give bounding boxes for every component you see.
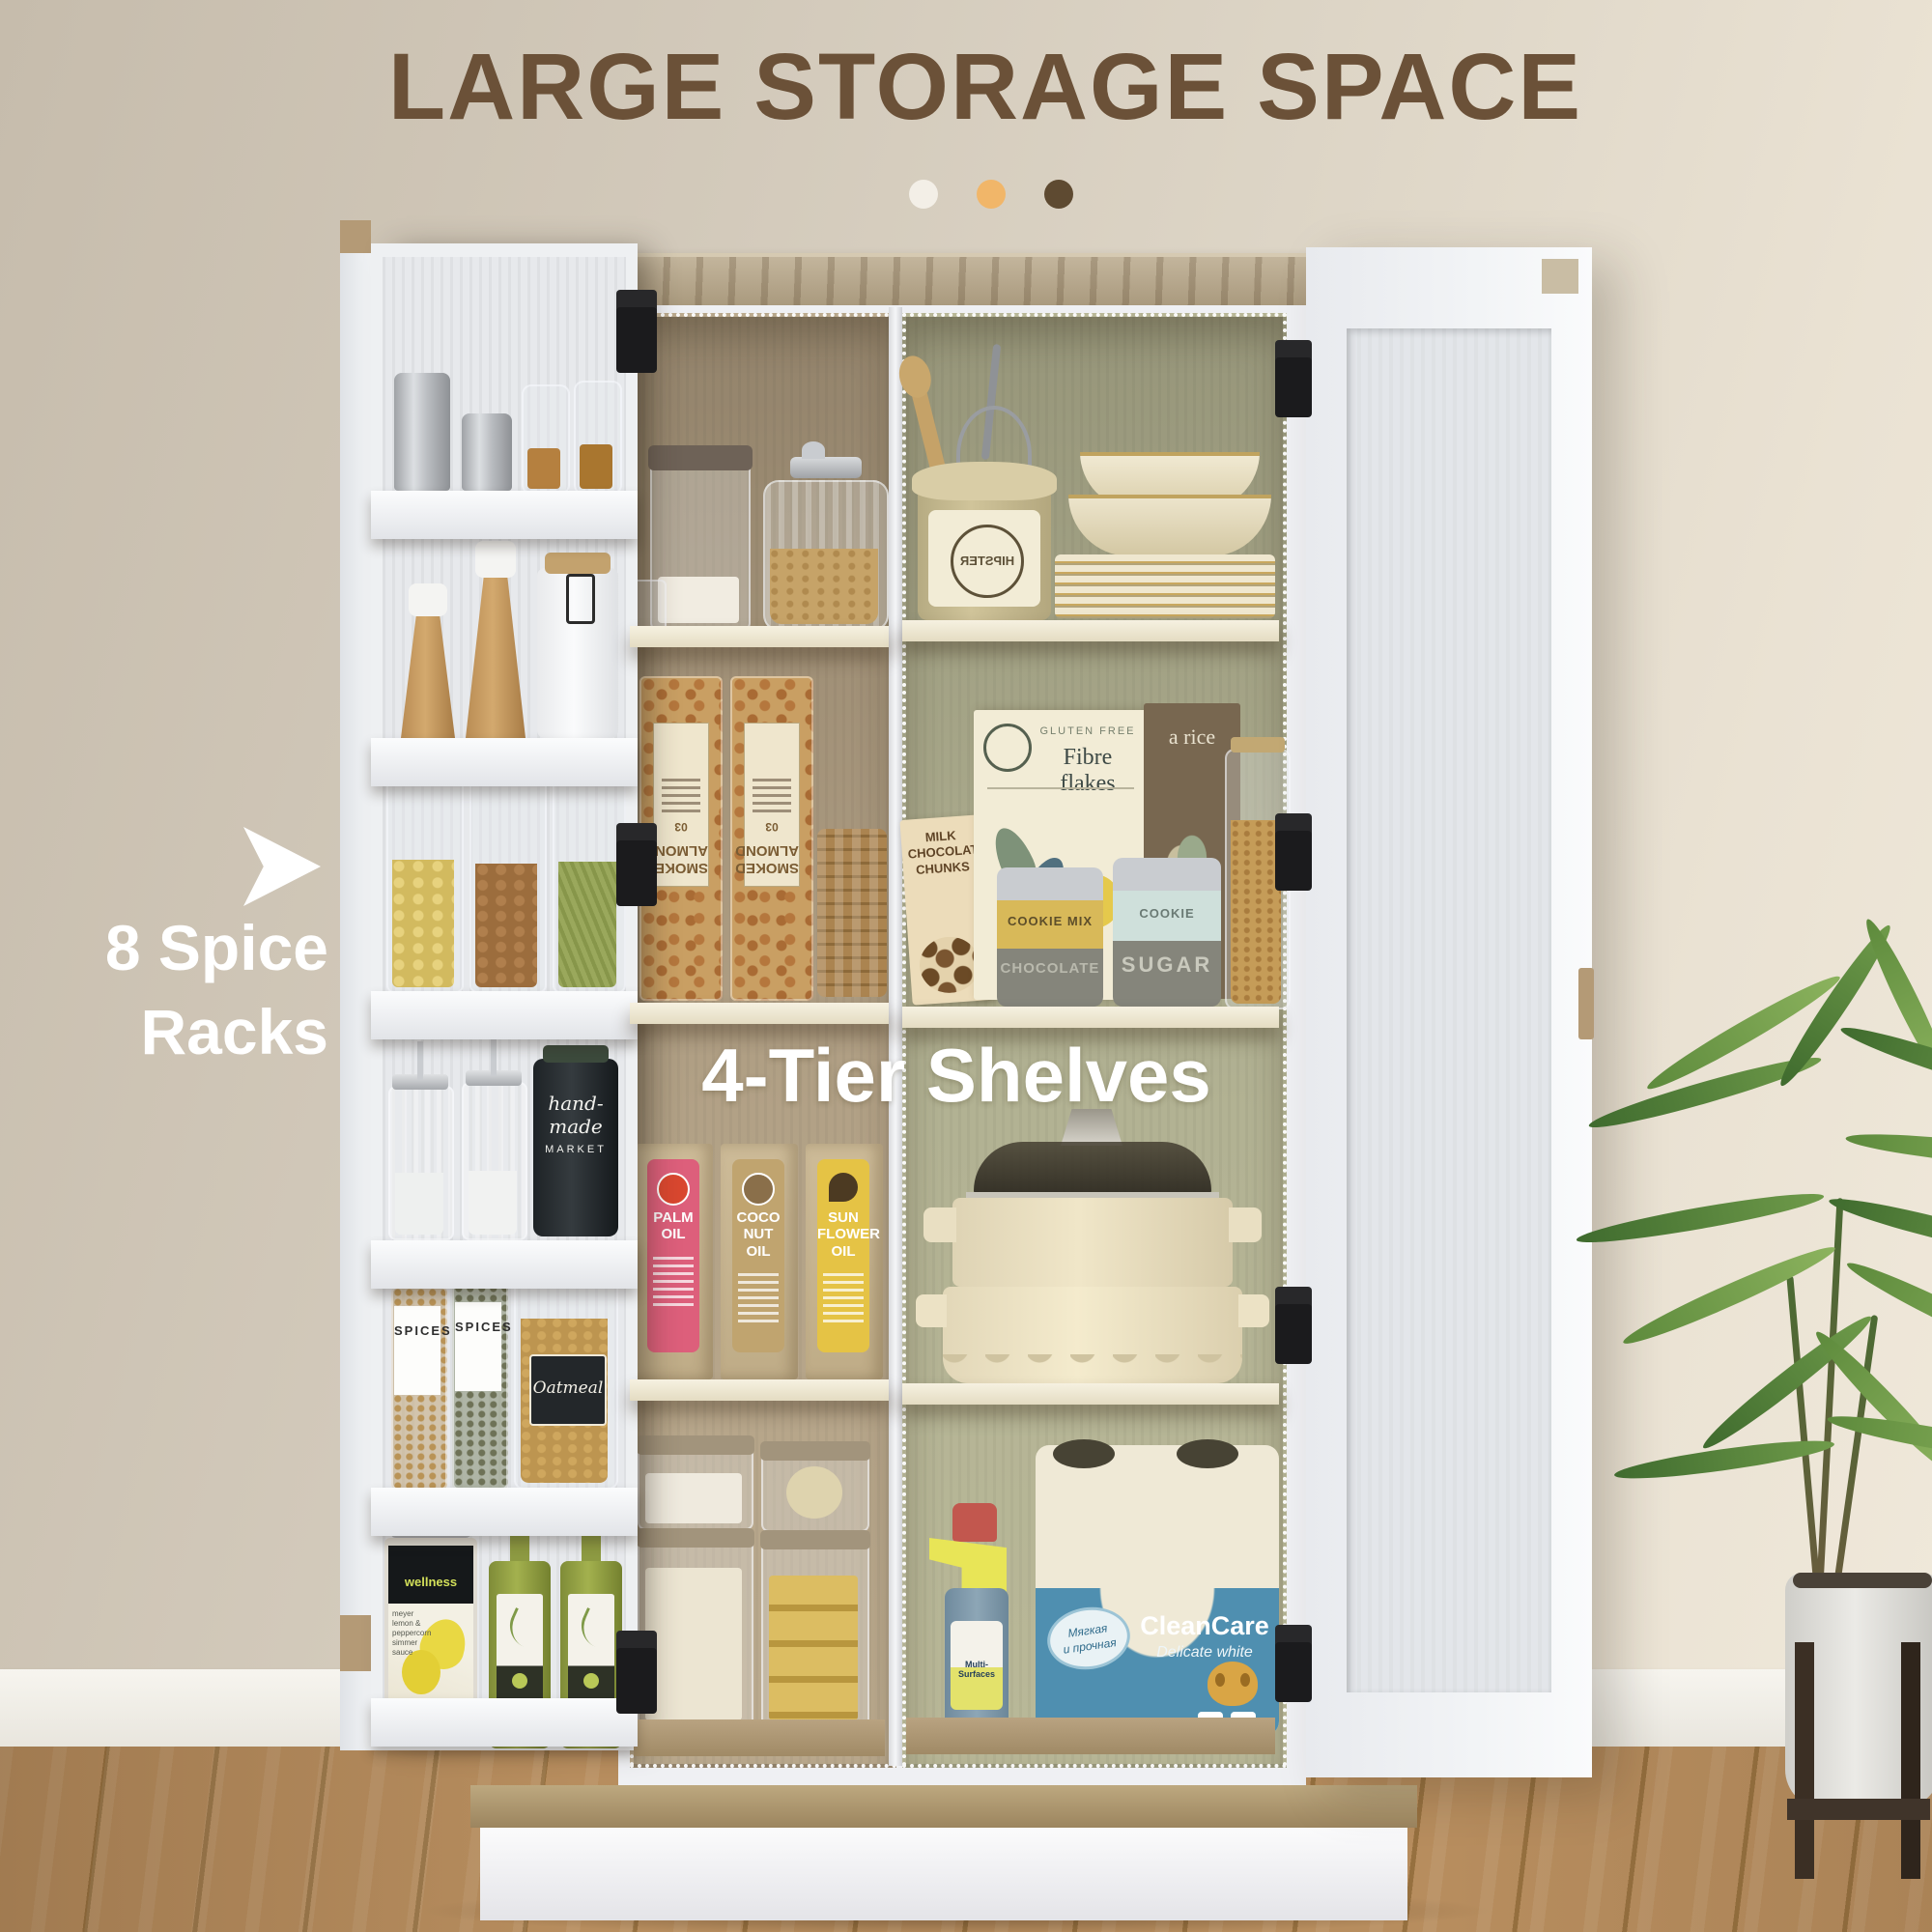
spice-racks-callout: 8 Spice Racks <box>39 906 328 1074</box>
chalkboard-jar-lid <box>543 1045 609 1063</box>
handmade-line3: MARKET <box>533 1144 618 1156</box>
palm-oil-label: PALM OIL <box>647 1159 699 1352</box>
palm-leaf <box>1845 1128 1932 1174</box>
pot-soil <box>1793 1573 1932 1588</box>
right-shelf-3 <box>902 1383 1279 1405</box>
rack-rail-3 <box>371 991 638 1039</box>
chocolate-band-text: CHOCOLATE <box>997 960 1103 977</box>
pot-glass-lid <box>974 1142 1211 1194</box>
page-title: LARGE STORAGE SPACE <box>19 33 1932 141</box>
oats-jar-knob <box>802 441 825 459</box>
rack-rail-4 <box>371 1240 638 1289</box>
right-compartment-floor <box>906 1718 1275 1754</box>
container-contents-rolls <box>769 1576 858 1720</box>
cleancare-sub: Delicate white <box>1132 1644 1277 1662</box>
left-compartment-floor <box>634 1719 885 1756</box>
pot-fluted-edge <box>943 1354 1242 1383</box>
left-door-top-cap <box>340 220 371 253</box>
oats-contents <box>770 549 878 624</box>
pointer-arrow-icon <box>243 827 321 906</box>
handmade-line2: made <box>533 1115 618 1138</box>
chalkboard-jar: hand- made MARKET <box>533 1059 618 1236</box>
pot-base-tier <box>943 1287 1242 1383</box>
container-lid <box>760 1441 870 1461</box>
sauce-desc: meyer lemon & peppercorn simmer sauce <box>392 1609 421 1658</box>
pot-handle-right <box>1229 1207 1262 1242</box>
coconut-icon <box>742 1173 775 1206</box>
mason-contents <box>469 1171 517 1235</box>
clamp-canister <box>537 568 618 738</box>
spice-racks-line2: Racks <box>39 990 328 1074</box>
pot-steamer-tier <box>952 1198 1233 1287</box>
rack-rail-6 <box>371 1698 638 1747</box>
sunflower-oil-label: SUN FLOWER OIL <box>817 1159 869 1352</box>
left-door-hinge-bottom <box>616 1631 657 1714</box>
product-scene: LARGE STORAGE SPACE SMOKED ALMOND 03 <box>0 0 1932 1932</box>
wellness-band: wellness <box>388 1546 473 1604</box>
spices-label-1: SPICES <box>394 1306 440 1395</box>
mason-jar-1 <box>388 1086 454 1240</box>
sugar-tin: COOKIE SUGAR <box>1113 858 1221 1007</box>
spray-cap <box>952 1503 997 1542</box>
palm-leaf <box>1842 1255 1932 1376</box>
hipster-jar: HIPSTER <box>918 483 1051 620</box>
oatmeal-clamp-jar: Oatmeal <box>514 1269 618 1490</box>
pasta-yellow-contents <box>392 860 454 987</box>
handmade-line1: hand- <box>533 1092 618 1115</box>
olive-dot-icon <box>583 1673 599 1689</box>
olive-sprig-icon <box>574 1607 611 1648</box>
oat-label: Oatmeal <box>529 1354 607 1426</box>
sunflower-seed-icon <box>829 1173 858 1202</box>
pot-stand-crossbar <box>1787 1799 1930 1820</box>
spray-label-text: Multi-Surfaces <box>951 1621 1003 1679</box>
beans-jar-green <box>553 769 626 993</box>
olive-sprig-icon <box>502 1607 539 1648</box>
coconut-oil-box: COCO NUT OIL <box>721 1144 798 1379</box>
color-swatch-dots <box>25 180 1932 209</box>
metal-canister-small <box>462 413 512 491</box>
palm-leaf <box>1619 1238 1839 1352</box>
container-contents-rice <box>645 1473 742 1523</box>
oats-jar-lid <box>790 457 862 478</box>
wicker-basket <box>817 829 887 997</box>
right-door-hinge-4 <box>1275 1625 1312 1702</box>
coconut-oil-label: COCO NUT OIL <box>732 1159 784 1352</box>
right-door-hinge-3 <box>1275 1287 1312 1364</box>
potted-plant <box>1546 966 1932 1932</box>
chocolate-chunks-text: MILK CHOCOLATE CHUNKS <box>899 814 982 878</box>
pot-base-handle-left <box>916 1294 947 1327</box>
container-lid <box>637 1435 754 1455</box>
palm-leaf <box>1826 1408 1932 1468</box>
puppy-ear <box>1240 1673 1250 1687</box>
almond-label-number: 03 <box>654 820 708 834</box>
rack-rail-2 <box>371 738 638 786</box>
left-shelf-2 <box>630 1003 889 1024</box>
palm-oil-text: PALM OIL <box>653 1209 693 1242</box>
hipster-jar-label: HIPSTER <box>928 510 1040 607</box>
left-door-hinge-middle <box>616 823 657 906</box>
handmade-script: hand- made MARKET <box>533 1059 618 1156</box>
towel-roll-top <box>1053 1439 1115 1468</box>
mason-contents <box>395 1173 443 1235</box>
mill-body <box>466 578 526 738</box>
gluten-free-text: GLUTEN FREE <box>1034 725 1142 737</box>
pasta-jar-yellow <box>386 769 464 993</box>
right-door-hinge-2 <box>1275 813 1312 891</box>
cabinet-base-wood-trim <box>470 1785 1417 1828</box>
pasta-brown-contents <box>475 864 537 987</box>
grain-contents <box>1231 820 1281 1004</box>
swatch-dot-orange <box>977 180 1006 209</box>
rack-rail-1 <box>371 491 638 539</box>
spray-label: Multi-Surfaces <box>951 1621 1003 1710</box>
swatch-dot-white <box>909 180 938 209</box>
sunflower-oil-box: SUN FLOWER OIL <box>806 1144 883 1379</box>
paper-towel-pack: Мягкая и прочная CleanCare Delicate whit… <box>1036 1445 1279 1735</box>
pot-handle-left <box>923 1207 956 1242</box>
hipster-jar-cloth-top <box>912 462 1057 500</box>
plate-stack <box>1055 554 1275 618</box>
pasta-jar-brown <box>469 773 547 993</box>
almond-fineprint <box>662 774 700 812</box>
left-door-edge <box>340 220 371 1750</box>
coconut-oil-fineprint <box>738 1273 779 1327</box>
pot-stand-leg-right <box>1901 1642 1920 1879</box>
almond-label-number: 03 <box>745 820 799 834</box>
container-large-right <box>761 1536 869 1727</box>
pot-stand-leg-left <box>1795 1642 1814 1879</box>
flour-jar-lid <box>648 445 753 470</box>
spices-label-2: SPICES <box>455 1302 501 1391</box>
container-contents-grain <box>645 1568 742 1720</box>
bowl-bottom <box>1068 495 1271 556</box>
palm-leaf <box>1827 1191 1932 1265</box>
puppy-art <box>1207 1662 1258 1706</box>
green-beans-contents <box>558 862 616 987</box>
label-rule <box>987 787 1134 789</box>
tier-shelves-callout: 4-Tier Shelves <box>618 1032 1294 1120</box>
smoked-almond-label-1: SMOKED ALMOND 03 <box>653 723 709 887</box>
oats-jar <box>763 480 889 631</box>
left-shelf-3 <box>630 1379 889 1401</box>
sunflower-oil-text: SUN FLOWER OIL <box>817 1209 880 1260</box>
cookie-mix-text: COOKIE MIX <box>997 914 1103 928</box>
mill-cap <box>409 583 447 616</box>
oil-bottle-label <box>568 1594 614 1710</box>
coconut-oil-text: COCO NUT OIL <box>737 1209 781 1260</box>
sunflower-oil-fineprint <box>823 1273 864 1327</box>
hipster-badge: HIPSTER <box>951 525 1024 598</box>
almond-fineprint <box>753 774 791 812</box>
pepper-mill-small <box>401 583 455 738</box>
organic-badge-icon <box>983 724 1032 772</box>
right-shelf-1 <box>902 620 1279 641</box>
sugar-text: SUGAR <box>1113 952 1221 978</box>
cabinet-plinth <box>480 1828 1407 1920</box>
left-shelf-1 <box>630 626 889 647</box>
cleancare-brand: CleanCare <box>1132 1611 1277 1641</box>
shaker-contents <box>580 444 612 489</box>
container-lid <box>637 1528 754 1548</box>
palm-fruit-icon <box>657 1173 690 1206</box>
palm-oil-fineprint <box>653 1257 694 1311</box>
oil-bottle-label <box>497 1594 543 1710</box>
pot-base-handle-right <box>1238 1294 1269 1327</box>
chocolate-pieces-art <box>918 935 981 995</box>
cookie-band-text: COOKIE <box>1113 906 1221 921</box>
glass-shaker-1 <box>522 384 570 495</box>
smoked-almond-label-2: SMOKED ALMOND 03 <box>744 723 800 887</box>
mason-jar-2 <box>462 1082 527 1240</box>
olive-dot-icon <box>512 1673 527 1689</box>
almond-label-text: SMOKED ALMOND <box>735 842 799 876</box>
spray-bottle-body: Multi-Surfaces <box>945 1588 1009 1735</box>
glass-shaker-2 <box>574 381 622 495</box>
spice-racks-line1: 8 Spice <box>39 906 328 990</box>
shaker-contents <box>527 448 560 489</box>
mill-cap <box>475 541 516 578</box>
swatch-dot-brown <box>1044 180 1073 209</box>
right-door-hinge-1 <box>1275 340 1312 417</box>
smoked-almond-jar-2: SMOKED ALMOND 03 <box>730 676 813 1001</box>
container-small-right <box>761 1447 869 1532</box>
grain-jar-lid <box>1231 737 1285 753</box>
container-lid <box>760 1530 870 1549</box>
mill-body <box>401 616 455 738</box>
rice-box-text: a rice <box>1144 703 1240 750</box>
mason-straw <box>417 1041 423 1080</box>
cookie-mix-tin: COOKIE MIX CHOCOLATE <box>997 867 1103 1007</box>
right-shelf-2 <box>902 1007 1279 1028</box>
container-small-left <box>638 1441 753 1530</box>
palm-oil-box: PALM OIL <box>636 1144 713 1379</box>
flour-contents <box>658 577 739 623</box>
right-door-wood-corner <box>1542 259 1578 294</box>
palm-leaf <box>1575 1186 1826 1251</box>
container-contents-slice <box>786 1466 842 1519</box>
rack-rail-5 <box>371 1488 638 1536</box>
right-door-panel <box>1347 328 1551 1692</box>
mason-straw <box>491 1037 497 1076</box>
metal-canister-large <box>394 373 450 491</box>
towel-roll-top <box>1177 1439 1238 1468</box>
clamp-canister-wood-lid <box>545 553 611 574</box>
clamp-wire <box>566 574 595 624</box>
left-door-hinge-top <box>616 290 657 373</box>
left-door-wood-notch <box>340 1615 371 1671</box>
palm-leaf <box>1697 1309 1878 1457</box>
puppy-ear <box>1215 1673 1225 1687</box>
pepper-mill-tall <box>466 541 526 738</box>
